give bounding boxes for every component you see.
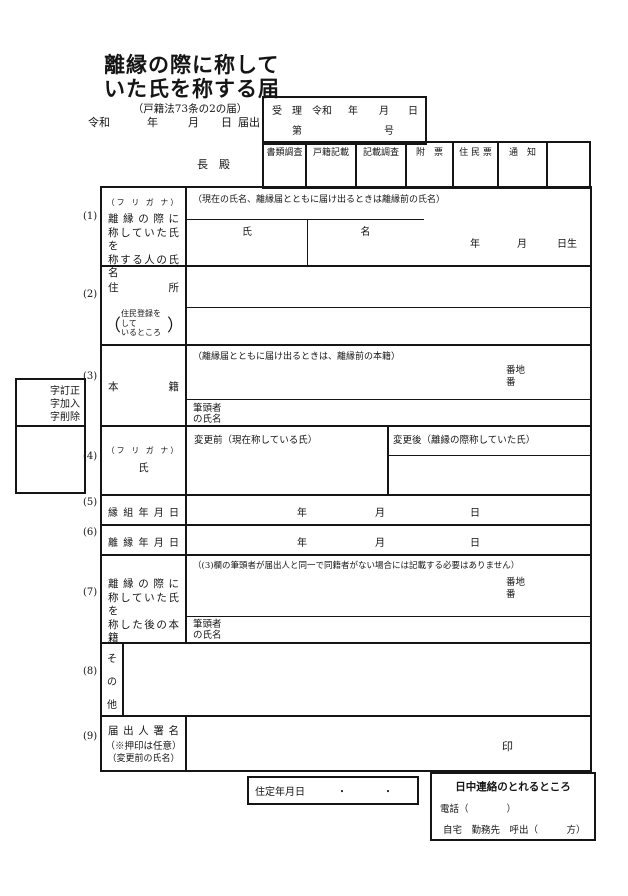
character-correction-box: 字訂正 字加入 字削除 (15, 378, 86, 494)
row-number-2: (2) (83, 289, 97, 300)
honseki-head-input-area[interactable] (242, 401, 588, 425)
row-address: 住 所 （ 住民登録をして いるところ ） (102, 265, 590, 344)
reception-label: 受 理 (272, 102, 302, 117)
birth-day-label: 日生 (557, 235, 577, 250)
surname-after-divider (389, 455, 590, 456)
last-name-input-area[interactable] (188, 228, 306, 264)
row-dissolution-date-label-cell: 離 縁 年 月 日 (102, 526, 187, 554)
row-signature-label-cell: 届 出 人 署 名 （※押印は任意） （変更前の氏名） (102, 717, 187, 770)
row-number-9: (9) (83, 731, 97, 742)
filing-suffix: 届出 (238, 114, 260, 130)
address-label: 住 所 (108, 280, 179, 295)
surname-col-divider (387, 427, 389, 496)
row-number-5: (5) (83, 497, 97, 508)
residence-date-dot2: ・ (383, 783, 393, 798)
correction-line-2: 字加入 (50, 398, 80, 411)
reception-num-suffix: 号 (384, 122, 394, 137)
stamp-cell-notice[interactable]: 通 知 (499, 143, 548, 187)
residence-date-dot1: ・ (337, 783, 347, 798)
correction-line-1: 字訂正 (50, 385, 80, 398)
stamp-cell-resident-card[interactable]: 住 民 票 (454, 143, 499, 187)
form-title-line2: いた氏を称する届 (104, 77, 280, 101)
correction-line-3: 字削除 (50, 411, 80, 424)
adoption-date-input-area[interactable] (188, 498, 588, 524)
main-form-table: （フ リ ガ ナ） 離 縁 の 際 に 称していた氏を 称する人の氏名 （現在の… (100, 186, 592, 772)
form-title: 離縁の際に称して いた氏を称する届 (104, 53, 280, 101)
row-surname-label-cell: （フ リ ガ ナ） 氏 (102, 427, 187, 494)
first-name-input-area[interactable] (308, 228, 423, 264)
honseki-label: 本 籍 (108, 379, 179, 394)
other-input-area[interactable] (126, 646, 588, 715)
daytime-contact-box: 日中連絡のとれるところ 電話（ ） 自宅 勤務先 呼出（ 方） (430, 772, 596, 841)
row-address-label-cell: 住 所 （ 住民登録をして いるところ ） (102, 267, 187, 344)
other-char-3: 他 (102, 696, 122, 711)
addressee-mayor-label: 長 殿 (197, 156, 230, 172)
surname-before-caption: 変更前（現在称している氏） (194, 432, 317, 446)
new-honseki-row-divider (187, 616, 590, 617)
signature-seal-note: （※押印は任意） (104, 738, 183, 752)
signature-prev-name-note: （変更前の氏名） (104, 751, 183, 764)
row-name-note: （現在の氏名、離縁届とともに届け出るときは離縁前の氏名） (193, 192, 445, 205)
surname-before-input-area[interactable] (188, 447, 386, 494)
reception-month: 月 (379, 102, 389, 117)
residence-date-label: 住定年月日 (255, 783, 305, 798)
surname-after-input-area[interactable] (390, 457, 588, 494)
surname-furigana-caption: （フ リ ガ ナ） (102, 445, 185, 456)
reception-num-prefix: 第 (292, 122, 302, 137)
adoption-date-label: 縁 組 年 月 日 (108, 504, 179, 519)
surname-label: 氏 (102, 460, 185, 475)
row-number-8: (8) (83, 666, 97, 677)
stamp-cell-fuhyo[interactable]: 附 票 (407, 143, 454, 187)
row-adoption-date-label-cell: 縁 組 年 月 日 (102, 496, 187, 524)
correction-box-divider (17, 425, 84, 427)
signature-label: 届 出 人 署 名 (108, 723, 179, 738)
new-honseki-input-area[interactable] (188, 570, 498, 614)
honseki-banchi-label: 番地 番 (506, 365, 525, 389)
row-number-7: (7) (83, 587, 97, 598)
row-number-6: (6) (83, 527, 97, 538)
filing-year-label: 年 (147, 114, 158, 130)
row-other-label-cell: そ の 他 (102, 644, 124, 715)
form-title-line1: 離縁の際に称して (104, 53, 280, 77)
address-row-divider (187, 307, 590, 308)
row-honseki-label-cell: 本 籍 (102, 346, 187, 425)
furigana-caption: （フ リ ガ ナ） (102, 197, 185, 208)
row-surname: （フ リ ガ ナ） 氏 変更前（現在称している氏） 変更後（離縁の際称していた氏… (102, 425, 590, 494)
residence-date-box[interactable]: 住定年月日 ・ ・ (247, 776, 419, 805)
address-input-line2[interactable] (188, 309, 588, 345)
row-adoption-date: 縁 組 年 月 日 年 月 日 (102, 494, 590, 524)
filing-era-label: 令和 (88, 114, 110, 130)
filing-month-label: 月 (188, 114, 199, 130)
reception-era: 令和 (312, 102, 332, 117)
reception-day: 日 (408, 102, 418, 117)
row-other: そ の 他 (102, 642, 590, 715)
other-char-2: の (102, 673, 122, 688)
correction-labels: 字訂正 字加入 字削除 (50, 385, 80, 424)
form-page: 離縁の際に称して いた氏を称する届 （戸籍法73条の2の届） 令和 年 月 日 … (0, 0, 628, 896)
row-signature: 届 出 人 署 名 （※押印は任意） （変更前の氏名） 印 (102, 715, 590, 770)
birth-month-label: 月 (517, 235, 527, 250)
office-stamp-row: 書類調査 戸籍記載 記載調査 附 票 住 民 票 通 知 (262, 141, 591, 189)
stamp-cell-koseki-entry[interactable]: 戸籍記載 (307, 143, 357, 187)
stamp-cell-entry-check[interactable]: 記載調査 (357, 143, 407, 187)
row-new-honseki: 離 縁 の 際 に 称していた氏を 称した後の本籍 （(3)欄の筆頭者が届出人と… (102, 554, 590, 642)
new-honseki-head-input-area[interactable] (242, 618, 588, 642)
contact-type-line[interactable]: 自宅 勤務先 呼出（ 方） (443, 822, 586, 836)
new-honseki-label: 離 縁 の 際 に 称していた氏を 称した後の本籍 (108, 578, 179, 646)
contact-box-title: 日中連絡のとれるところ (432, 779, 594, 794)
honseki-input-area[interactable] (188, 360, 498, 398)
stamp-cell-document-check[interactable]: 書類調査 (264, 143, 307, 187)
row-dissolution-date: 離 縁 年 月 日 年 月 日 (102, 524, 590, 554)
seal-mark-label: 印 (502, 738, 513, 754)
surname-after-caption: 変更後（離縁の際称していた氏） (393, 432, 535, 446)
dissolution-date-input-area[interactable] (188, 528, 588, 554)
address-input-line1[interactable] (188, 268, 588, 306)
row-honseki: 本 籍 （離縁届とともに届け出るときは、離縁前の本籍） 番地 番 筆頭者 の氏名 (102, 344, 590, 425)
other-char-1: そ (102, 650, 122, 665)
honseki-head-label: 筆頭者 の氏名 (193, 403, 222, 425)
row-new-honseki-label-cell: 離 縁 の 際 に 称していた氏を 称した後の本籍 (102, 556, 187, 642)
row-number-1: (1) (83, 211, 97, 222)
honseki-row-divider (187, 399, 590, 400)
reception-year: 年 (348, 102, 358, 117)
dissolution-date-label: 離 縁 年 月 日 (108, 534, 179, 549)
contact-phone-line[interactable]: 電話（ ） (440, 801, 516, 815)
reception-box[interactable]: 受 理 令和 年 月 日 第 号 (262, 96, 427, 145)
address-registration-note: （ 住民登録をして いるところ ） (104, 309, 184, 338)
filing-day-label: 日 (221, 114, 232, 130)
birth-year-label: 年 (470, 235, 480, 250)
row-name-label-cell: （フ リ ガ ナ） 離 縁 の 際 に 称していた氏を 称する人の氏名 (102, 188, 187, 265)
signature-input-area[interactable] (188, 719, 488, 770)
name-cells-topline (187, 219, 424, 220)
new-honseki-banchi-label: 番地 番 (506, 577, 525, 601)
row-name: （フ リ ガ ナ） 離 縁 の 際 に 称していた氏を 称する人の氏名 （現在の… (102, 188, 590, 265)
new-honseki-head-label: 筆頭者 の氏名 (193, 619, 222, 641)
stamp-cell-blank[interactable] (548, 143, 589, 187)
